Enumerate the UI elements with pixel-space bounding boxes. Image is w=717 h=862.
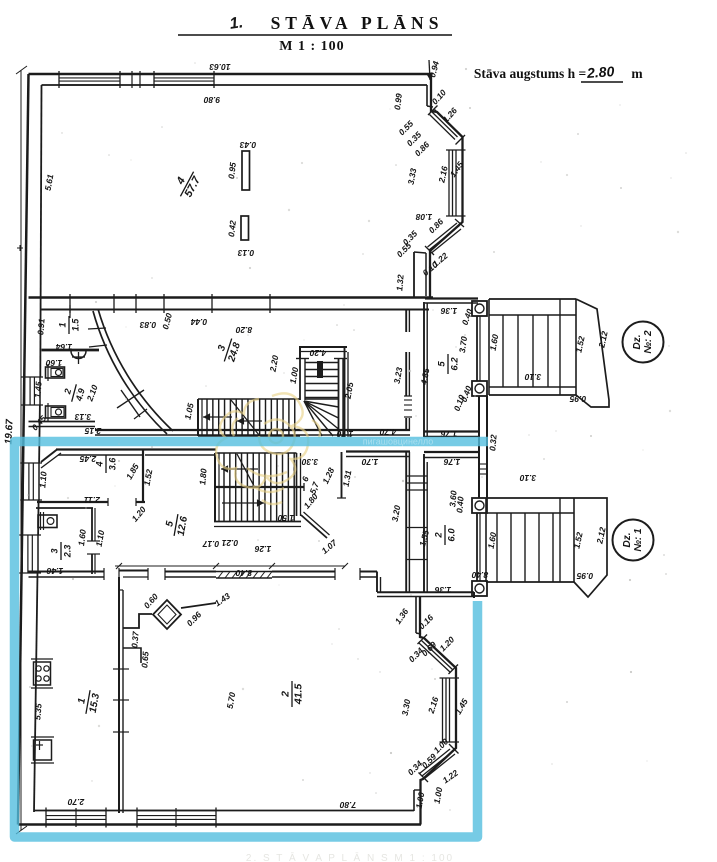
svg-text:1.64: 1.64 <box>55 342 72 352</box>
svg-text:Dz.: Dz. <box>632 335 643 350</box>
svg-text:3.10: 3.10 <box>519 473 536 483</box>
svg-text:1.60: 1.60 <box>76 529 88 547</box>
svg-text:0.13: 0.13 <box>237 248 254 258</box>
svg-text:2. S T Ā V A P L Ā N S M: 2. S T Ā V A P L Ā N S M 1 : 100 <box>246 852 454 862</box>
svg-text:0.40: 0.40 <box>454 496 465 514</box>
svg-text:1.46: 1.46 <box>46 566 63 576</box>
svg-text:0.42: 0.42 <box>226 220 238 238</box>
svg-text:0.83: 0.83 <box>139 320 156 330</box>
svg-text:3: 3 <box>50 548 60 553</box>
svg-text:6.0: 6.0 <box>447 528 458 542</box>
svg-text:1.80: 1.80 <box>197 468 208 486</box>
svg-text:пигашовцинелло: пигашовцинелло <box>363 437 433 447</box>
svg-text:1.10: 1.10 <box>37 471 48 489</box>
svg-text:10.63: 10.63 <box>209 62 231 72</box>
svg-text:0.91: 0.91 <box>35 318 46 336</box>
svg-text:1.: 1. <box>229 14 245 33</box>
svg-text:0.65: 0.65 <box>139 651 150 669</box>
svg-text:0.32: 0.32 <box>487 434 498 452</box>
svg-text:3.10: 3.10 <box>524 372 541 382</box>
svg-text:41.5: 41.5 <box>293 684 305 706</box>
svg-text:1.5: 1.5 <box>71 318 81 332</box>
svg-text:1: 1 <box>58 322 68 327</box>
svg-text:8.40: 8.40 <box>235 568 252 578</box>
svg-text:9.80: 9.80 <box>203 95 220 105</box>
svg-text:0.99: 0.99 <box>392 93 404 111</box>
svg-text:0.95: 0.95 <box>569 394 586 404</box>
svg-text:1.60: 1.60 <box>45 358 62 368</box>
svg-text:5: 5 <box>437 361 448 367</box>
svg-text:7.80: 7.80 <box>339 800 356 810</box>
svg-text:M 1 : 100: M 1 : 100 <box>279 39 344 54</box>
svg-text:3.30: 3.30 <box>301 457 318 467</box>
svg-text:1.70: 1.70 <box>361 457 378 467</box>
svg-text:3.6: 3.6 <box>108 457 118 471</box>
svg-text:0.95: 0.95 <box>576 571 593 581</box>
svg-text:№: 1: №: 1 <box>633 528 644 552</box>
svg-text:0.95: 0.95 <box>226 162 238 180</box>
svg-text:0.44: 0.44 <box>190 317 207 327</box>
svg-text:0.21: 0.21 <box>221 538 238 548</box>
svg-text:1.08: 1.08 <box>415 212 432 222</box>
svg-text:2.3: 2.3 <box>63 545 73 559</box>
svg-text:4.20: 4.20 <box>309 348 327 358</box>
svg-text:2: 2 <box>280 691 292 698</box>
svg-text:1.45: 1.45 <box>32 381 43 399</box>
svg-text:8.20: 8.20 <box>235 325 252 335</box>
svg-text:2: 2 <box>434 532 445 539</box>
svg-text:4.70: 4.70 <box>379 427 397 437</box>
svg-text:1.50: 1.50 <box>277 513 294 523</box>
svg-text:8.40: 8.40 <box>471 570 488 580</box>
svg-text:1.76: 1.76 <box>443 457 460 467</box>
svg-text:1.36: 1.36 <box>434 585 451 595</box>
svg-text:Dz.: Dz. <box>622 533 633 548</box>
svg-text:0.17: 0.17 <box>201 539 219 549</box>
svg-text:1.36: 1.36 <box>440 306 457 316</box>
svg-text:3.13: 3.13 <box>74 412 91 422</box>
svg-text:2.11: 2.11 <box>84 495 101 505</box>
svg-text:Stāva augstums h =: Stāva augstums h = <box>474 66 586 81</box>
svg-text:2.45: 2.45 <box>79 454 97 464</box>
svg-text:0.37: 0.37 <box>129 630 141 649</box>
svg-text:5.35: 5.35 <box>32 703 43 721</box>
svg-text:m: m <box>631 66 643 81</box>
svg-text:6.2: 6.2 <box>450 357 461 371</box>
svg-text:2.80: 2.80 <box>586 63 616 81</box>
svg-text:STĀVA PLĀNS: STĀVA PLĀNS <box>271 13 444 33</box>
svg-text:1.32: 1.32 <box>394 274 405 292</box>
svg-text:2.70: 2.70 <box>67 797 85 807</box>
svg-text:2.15: 2.15 <box>84 426 102 436</box>
svg-text:1.26: 1.26 <box>254 544 271 554</box>
svg-text:0.43: 0.43 <box>239 140 256 150</box>
svg-text:№: 2: №: 2 <box>643 330 654 354</box>
